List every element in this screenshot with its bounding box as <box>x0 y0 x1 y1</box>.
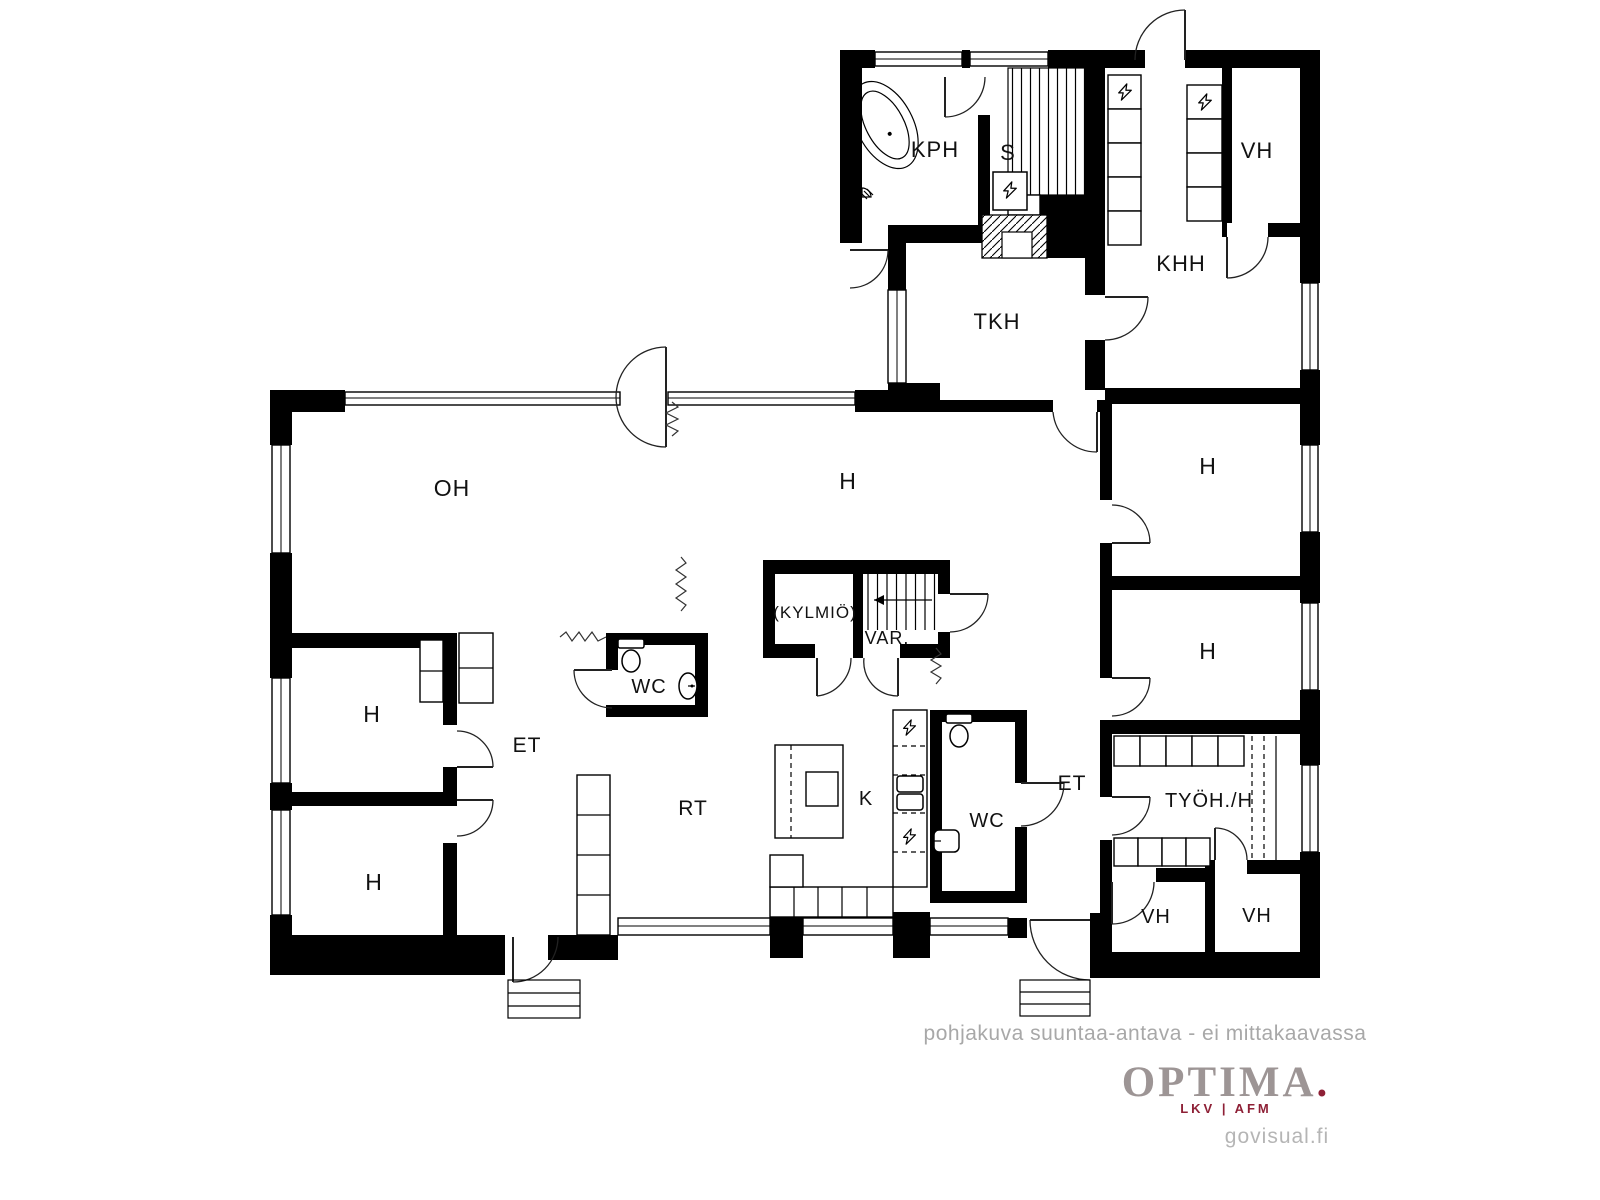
door <box>1112 678 1150 716</box>
room-label-tkh: TKH <box>974 309 1021 334</box>
door <box>1105 297 1148 340</box>
kitchen-sink-icon <box>897 776 923 792</box>
door <box>1227 237 1268 278</box>
room-label-h-center: H <box>839 468 857 494</box>
appliance-column <box>1187 85 1222 221</box>
disclaimer-text: pohjakuva suuntaa-antava - ei mittakaava… <box>924 1022 1367 1045</box>
door <box>817 658 851 696</box>
sauna-heater <box>993 172 1027 210</box>
cabinet <box>1114 838 1210 866</box>
door <box>1112 505 1150 543</box>
room-label-vh-top: VH <box>1241 138 1274 163</box>
door <box>1030 920 1090 980</box>
window <box>888 290 906 383</box>
window <box>1302 445 1318 532</box>
wardrobe-dashed <box>1252 736 1264 862</box>
room-label-s: S <box>1000 140 1016 165</box>
kitchen-counter <box>893 710 927 887</box>
room-label-et-left: ET <box>513 734 542 757</box>
window <box>970 52 1048 66</box>
room-label-h-right-mid: H <box>1199 638 1217 664</box>
floor-plan-page: KPH S VH KHH TKH OH H H H (KYLMIÖ) VAR. … <box>0 0 1600 1200</box>
room-label-vh-bottom-right: VH <box>1242 905 1272 927</box>
porch-steps <box>508 980 580 1018</box>
door <box>864 658 898 696</box>
door <box>616 347 666 447</box>
toilet-icon <box>946 714 972 747</box>
room-label-tyoh: TYÖH./H <box>1165 790 1253 812</box>
room-label-k: K <box>859 788 873 810</box>
door <box>850 250 888 288</box>
window <box>1302 283 1318 370</box>
brand-logo: OPTIMA. <box>1122 1059 1331 1106</box>
window <box>1302 603 1318 690</box>
room-label-h-right-top: H <box>1199 453 1217 479</box>
cabinet <box>577 775 610 935</box>
door <box>1112 797 1150 835</box>
door <box>945 77 985 117</box>
room-label-et-right: ET <box>1058 772 1087 795</box>
room-label-var: VAR. <box>865 628 910 648</box>
window <box>272 445 290 553</box>
window <box>930 918 1008 935</box>
porch-steps <box>1020 980 1090 1016</box>
room-label-kylmio: (KYLMIÖ) <box>773 603 857 622</box>
room-label-wc-center: WC <box>631 676 666 698</box>
window <box>875 52 962 66</box>
fireplace <box>982 215 1047 258</box>
window <box>803 918 893 935</box>
room-label-rt: RT <box>678 797 708 820</box>
window <box>272 810 290 915</box>
kitchen-counter <box>770 855 893 917</box>
kitchen-sink-icon <box>897 794 923 810</box>
shower-icon <box>862 188 873 199</box>
floor-plan: KPH S VH KHH TKH OH H H H (KYLMIÖ) VAR. … <box>0 0 1600 1200</box>
door <box>1053 412 1097 452</box>
brand-logo-text: OPTIMA <box>1122 1059 1317 1106</box>
room-label-oh: OH <box>434 475 471 501</box>
room-label-wc-right: WC <box>969 810 1004 832</box>
brand-sub-text: LKV | AFM <box>1180 1101 1272 1116</box>
door <box>457 731 493 767</box>
room-label-h-left-bottom: H <box>365 869 383 895</box>
stairs <box>868 574 935 630</box>
room-label-h-left-top: H <box>363 701 381 727</box>
window <box>618 918 770 935</box>
room-label-kph: KPH <box>911 137 959 162</box>
appliance-column <box>1108 75 1141 245</box>
room-label-vh-bottom-left: VH <box>1141 906 1171 928</box>
window <box>272 678 290 783</box>
door <box>457 800 493 836</box>
stairs-up-arrow <box>874 595 884 605</box>
watermark-text: govisual.fi <box>1225 1125 1329 1148</box>
window <box>345 392 620 405</box>
door <box>574 670 612 708</box>
window <box>668 392 855 405</box>
window <box>1302 765 1318 852</box>
sink-icon <box>934 830 959 852</box>
door <box>950 594 988 632</box>
door <box>1215 828 1247 860</box>
room-label-khh: KHH <box>1156 251 1205 276</box>
sink-icon <box>679 673 697 699</box>
toilet-icon <box>618 639 644 672</box>
brand-logo-dot: . <box>1317 1059 1331 1106</box>
kitchen-island <box>775 745 843 838</box>
